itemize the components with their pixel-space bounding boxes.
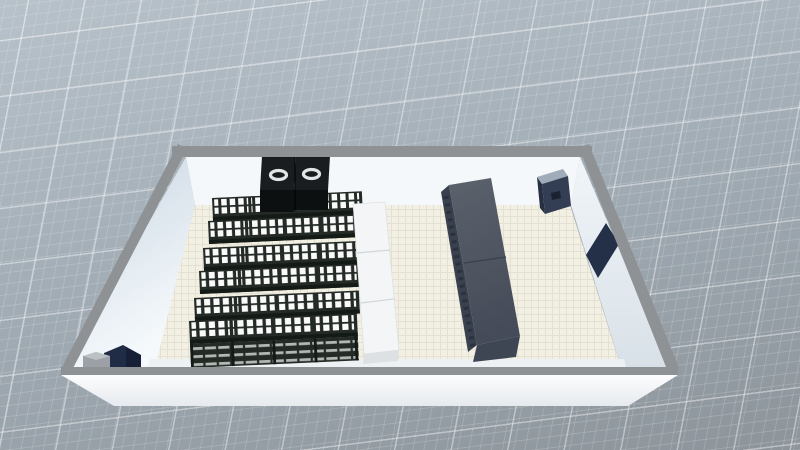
- rack-block[interactable]: [189, 191, 363, 368]
- crac-top: [294, 156, 330, 190]
- crac-unit-2[interactable]: [294, 156, 330, 211]
- room-scene: [0, 0, 800, 450]
- crac-unit-1[interactable]: [260, 156, 296, 212]
- crac-front: [294, 190, 328, 210]
- front-wall[interactable]: [61, 375, 678, 406]
- crac-top: [260, 156, 296, 190]
- front-wall-top: [61, 367, 678, 375]
- crac-front: [260, 190, 294, 212]
- pdu-cabinet[interactable]: [537, 169, 571, 214]
- back-wall-top: [172, 146, 592, 157]
- scene-viewport[interactable]: [0, 0, 800, 450]
